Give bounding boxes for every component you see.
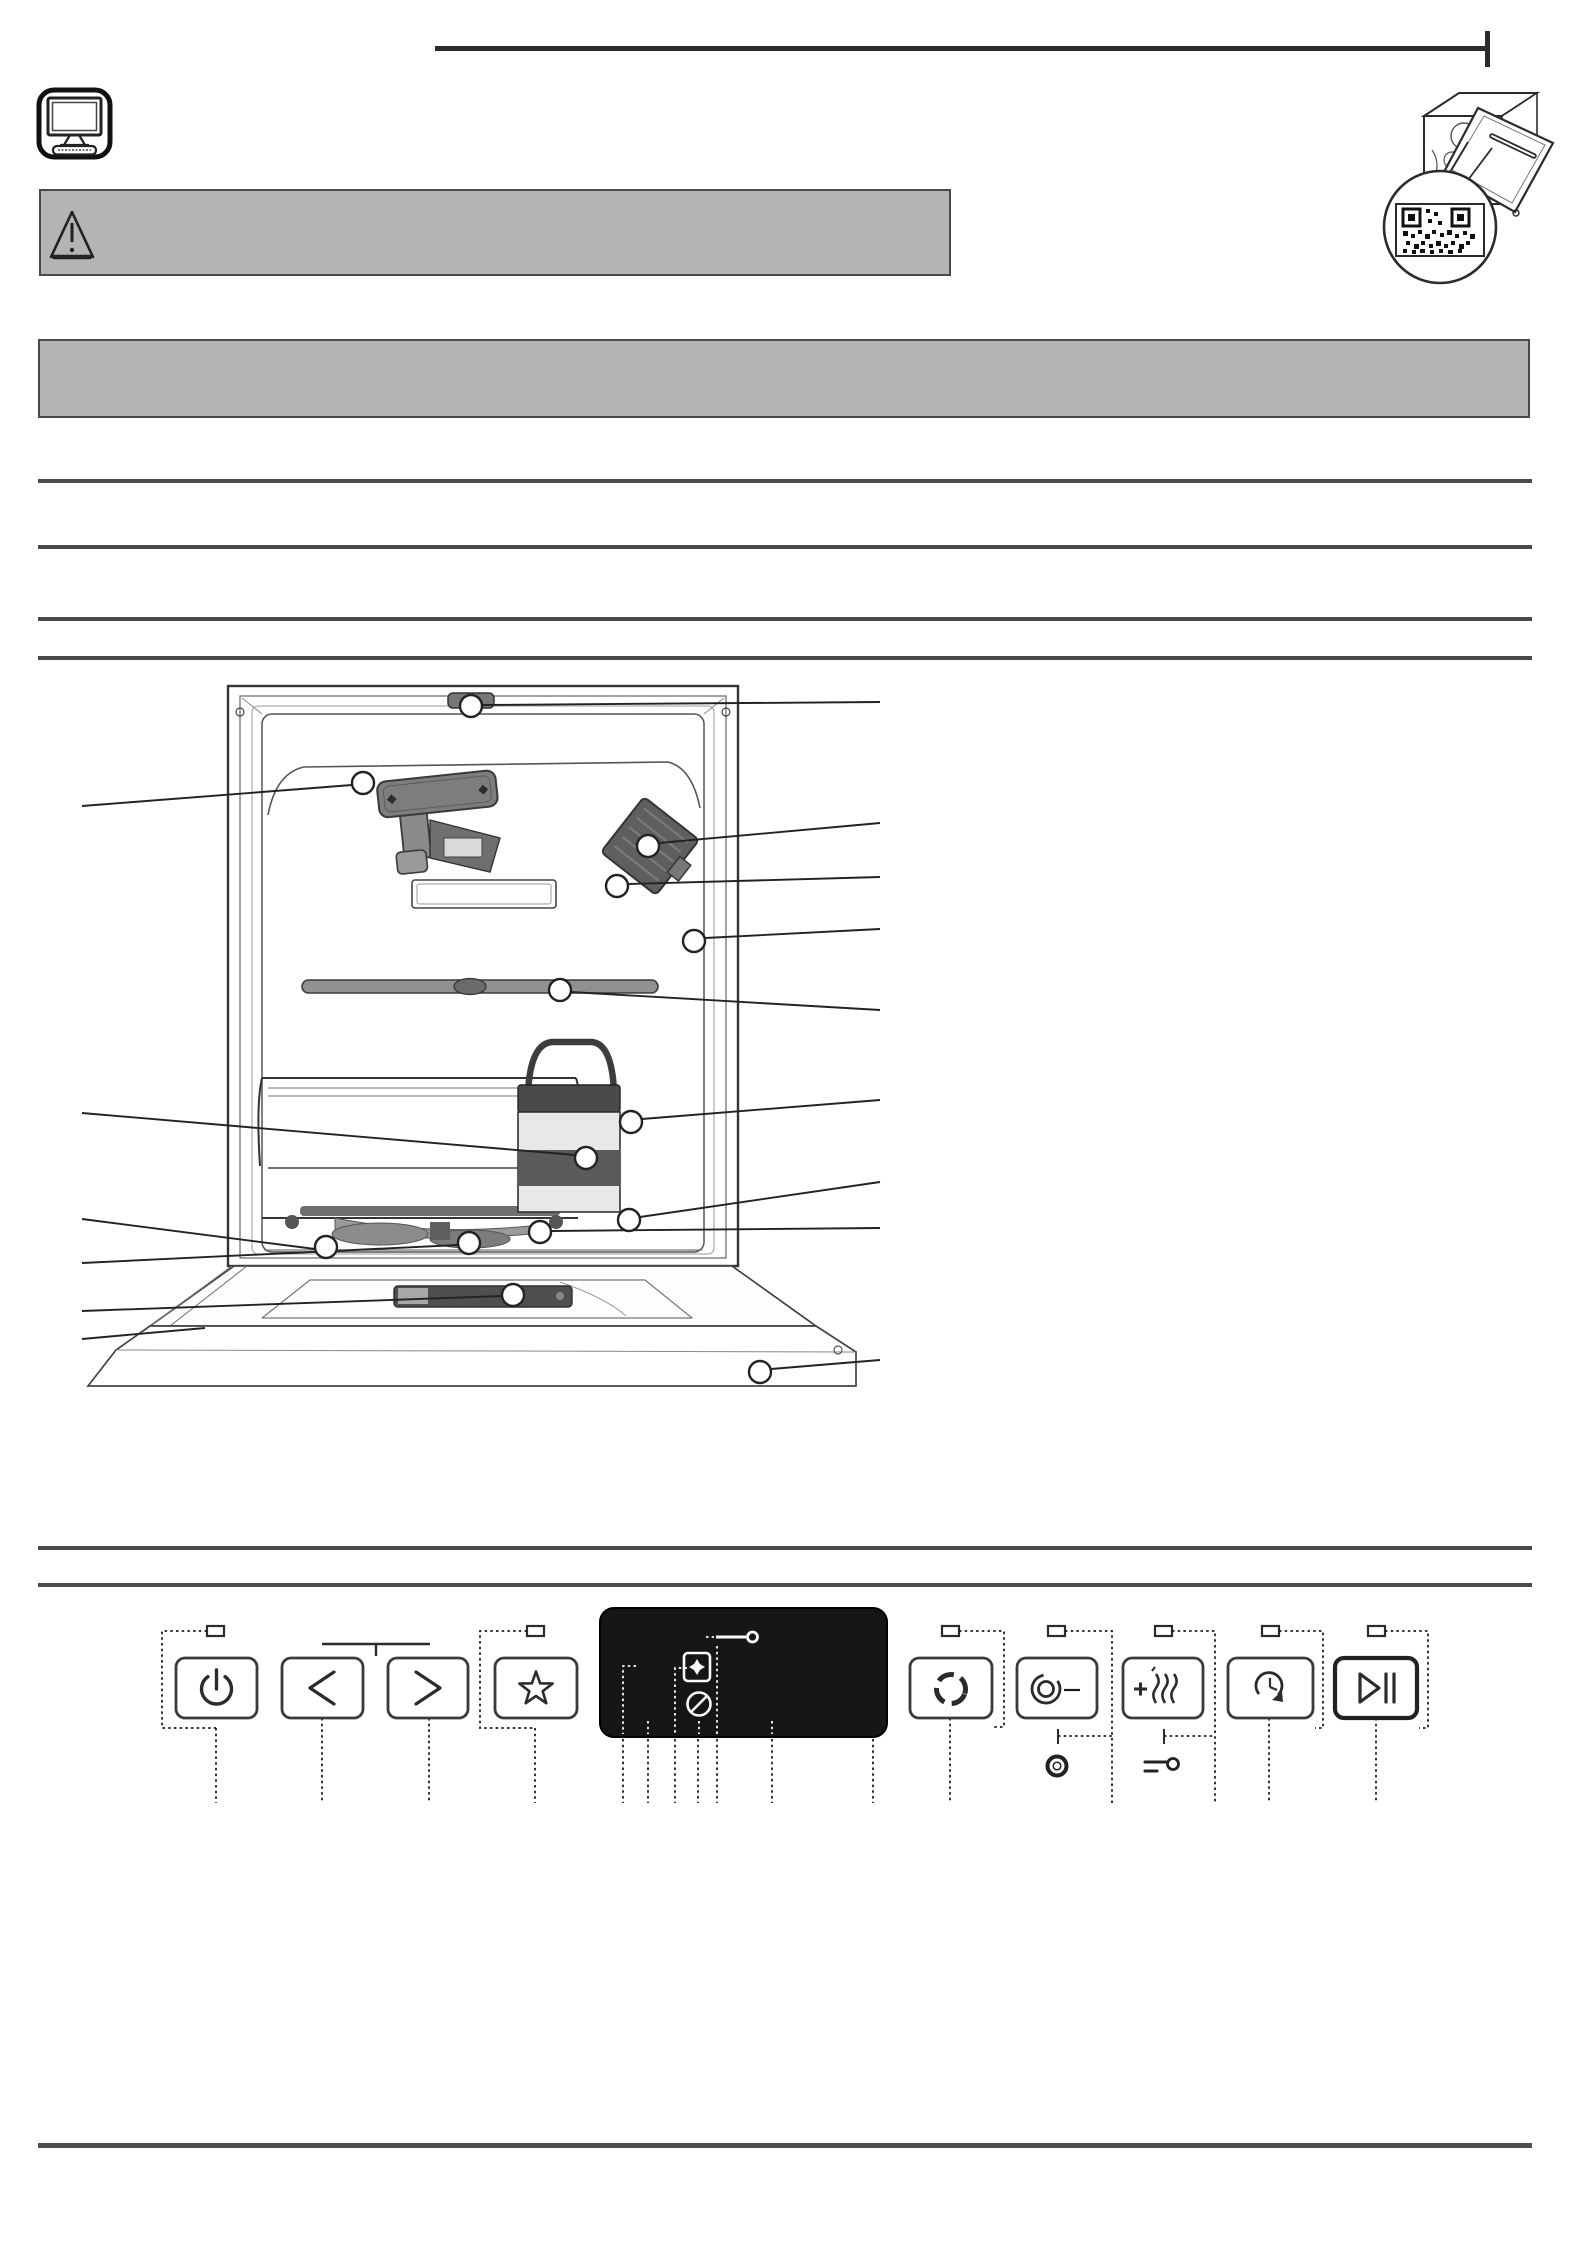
callout-marker [749, 1361, 771, 1383]
section-rule [38, 1546, 1532, 1550]
header-rule [435, 46, 1487, 51]
led-indicator [1048, 1626, 1065, 1636]
section-rule [38, 545, 1532, 549]
favorite-button [495, 1658, 577, 1718]
callout-marker [529, 1221, 551, 1243]
led-indicator [527, 1626, 544, 1636]
callout-marker [502, 1284, 524, 1306]
section-rule [38, 479, 1532, 483]
delay-timer-button [1228, 1658, 1313, 1718]
led-indicator [942, 1626, 959, 1636]
upper-spray-arm [302, 979, 658, 995]
callout-marker [460, 695, 482, 717]
display [600, 1608, 887, 1737]
start-pause-button [1335, 1658, 1417, 1718]
led-indicator [1155, 1626, 1172, 1636]
section-rule [38, 1583, 1532, 1587]
hold-hint-settings [1048, 1757, 1067, 1776]
callout-marker [458, 1232, 480, 1254]
led-indicator [1262, 1626, 1279, 1636]
callout-marker [606, 875, 628, 897]
door [88, 1266, 856, 1386]
callout-marker [575, 1147, 597, 1169]
callout-marker [549, 979, 571, 1001]
power-button [176, 1658, 257, 1718]
program-prev-button [282, 1658, 363, 1718]
hold-hint-lock [1145, 1759, 1179, 1772]
header-rule-tick [1485, 31, 1490, 67]
led-indicator [1368, 1626, 1385, 1636]
callout-marker [637, 835, 659, 857]
footer-rule [38, 2143, 1532, 2148]
qr-code [1384, 171, 1496, 283]
program-label-rule [322, 1644, 430, 1656]
manual-page [0, 0, 1587, 2245]
program-next-button [388, 1658, 468, 1718]
callout-marker [618, 1209, 640, 1231]
monitor-keyboard-icon [30, 84, 118, 166]
warning-triangle-icon [47, 209, 101, 265]
gear-icon [1048, 1757, 1067, 1776]
qr-illustration [1368, 70, 1587, 300]
callout-marker [683, 930, 705, 952]
zone-wash-button [910, 1658, 992, 1718]
dishwasher-diagram [0, 660, 940, 1420]
sprayer-slot [444, 838, 482, 857]
warning-banner [39, 189, 951, 276]
control-panel [140, 1600, 1460, 1815]
callout-marker [620, 1111, 642, 1133]
half-load-button [1017, 1658, 1097, 1718]
key-icon [1145, 1759, 1179, 1772]
callout-marker [315, 1236, 337, 1258]
led-indicator [207, 1626, 224, 1636]
callout-marker [352, 772, 374, 794]
section-rule [38, 617, 1532, 621]
info-banner [38, 339, 1530, 418]
extra-dry-button [1123, 1658, 1203, 1718]
